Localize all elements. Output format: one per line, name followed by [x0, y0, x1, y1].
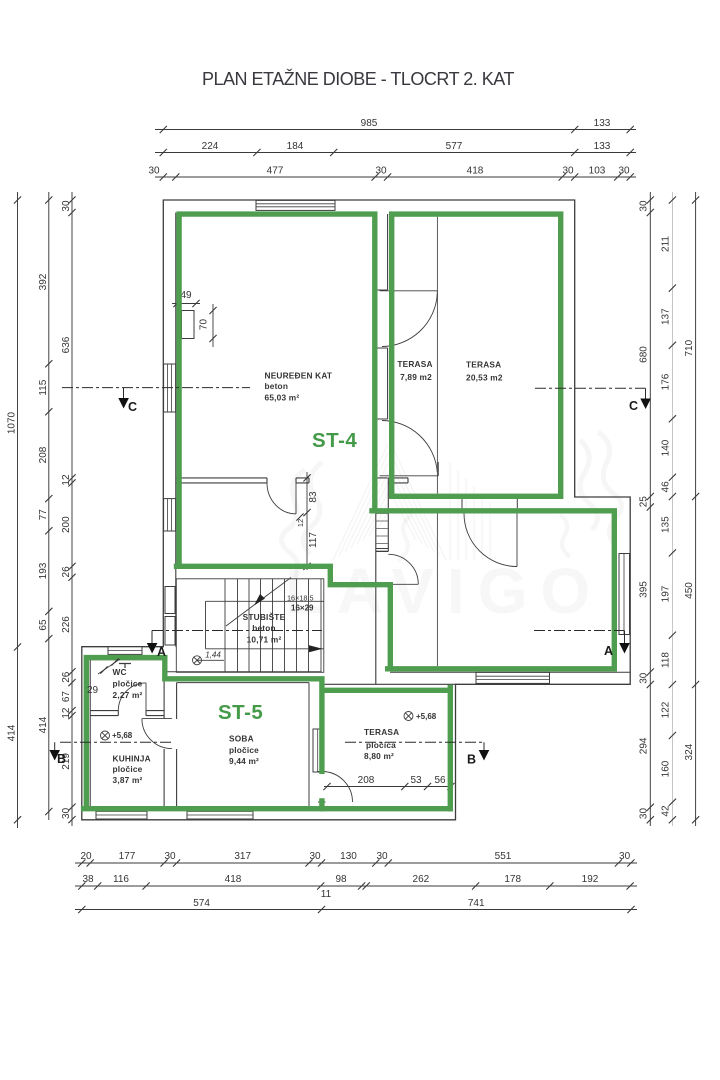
- svg-text:38: 38: [82, 874, 94, 885]
- svg-text:56: 56: [434, 775, 446, 786]
- svg-text:160: 160: [661, 760, 672, 777]
- svg-text:30: 30: [61, 807, 72, 819]
- svg-text:395: 395: [639, 581, 650, 598]
- svg-text:574: 574: [193, 898, 210, 909]
- svg-text:pločica: pločica: [366, 740, 396, 750]
- svg-text:200: 200: [61, 516, 72, 533]
- svg-text:29: 29: [87, 685, 99, 696]
- svg-text:30: 30: [148, 166, 160, 177]
- svg-text:53: 53: [410, 775, 422, 786]
- svg-text:224: 224: [202, 141, 219, 152]
- svg-text:414: 414: [38, 716, 49, 733]
- svg-text:30: 30: [619, 851, 631, 862]
- svg-text:477: 477: [267, 166, 284, 177]
- svg-text:11: 11: [321, 889, 332, 900]
- svg-text:226: 226: [61, 616, 72, 633]
- svg-text:70: 70: [199, 319, 210, 331]
- svg-text:TERASA: TERASA: [397, 359, 432, 369]
- svg-text:30: 30: [376, 851, 388, 862]
- svg-text:176: 176: [661, 373, 672, 390]
- svg-text:KUHINJA: KUHINJA: [113, 754, 151, 764]
- svg-text:30: 30: [375, 166, 387, 177]
- svg-text:ST-4: ST-4: [312, 429, 357, 452]
- svg-text:beton: beton: [265, 381, 289, 391]
- svg-text:30: 30: [562, 166, 574, 177]
- svg-text:418: 418: [467, 166, 484, 177]
- svg-text:414: 414: [7, 724, 18, 741]
- svg-text:B: B: [57, 752, 66, 766]
- svg-text:985: 985: [361, 118, 378, 129]
- svg-text:103: 103: [589, 166, 606, 177]
- svg-text:211: 211: [661, 236, 672, 252]
- svg-text:25: 25: [639, 496, 650, 508]
- svg-text:418: 418: [225, 874, 242, 885]
- svg-text:122: 122: [661, 701, 672, 718]
- svg-text:65: 65: [38, 619, 49, 631]
- svg-text:197: 197: [661, 585, 672, 602]
- svg-text:317: 317: [234, 851, 251, 862]
- svg-text:+5,68: +5,68: [112, 731, 133, 740]
- svg-text:30: 30: [639, 808, 650, 820]
- svg-text:7,89 m2: 7,89 m2: [400, 372, 432, 382]
- svg-text:8,80 m²: 8,80 m²: [364, 751, 394, 761]
- svg-text:710: 710: [684, 339, 695, 356]
- svg-text:551: 551: [495, 851, 512, 862]
- svg-text:42: 42: [661, 805, 672, 817]
- svg-text:178: 178: [504, 874, 521, 885]
- svg-text:46: 46: [661, 481, 672, 493]
- svg-text:118: 118: [661, 652, 672, 668]
- svg-text:65,03 m²: 65,03 m²: [265, 393, 300, 403]
- svg-text:2,27 m²: 2,27 m²: [113, 690, 143, 700]
- svg-text:TERASA: TERASA: [364, 727, 399, 737]
- svg-text:1070: 1070: [7, 411, 18, 434]
- svg-text:177: 177: [119, 851, 136, 862]
- svg-text:30: 30: [639, 672, 650, 684]
- svg-text:STUBIŠTE: STUBIŠTE: [243, 611, 286, 622]
- svg-text:30: 30: [164, 851, 176, 862]
- svg-text:450: 450: [684, 582, 695, 599]
- svg-text:ST-5: ST-5: [218, 701, 263, 724]
- svg-text:SOBA: SOBA: [229, 734, 254, 744]
- svg-text:193: 193: [38, 562, 49, 579]
- svg-text:NEUREĐEN KAT: NEUREĐEN KAT: [265, 371, 333, 381]
- svg-text:30: 30: [309, 851, 321, 862]
- svg-text:77: 77: [38, 509, 49, 521]
- svg-text:12: 12: [61, 474, 72, 486]
- svg-text:20: 20: [80, 851, 92, 862]
- svg-text:137: 137: [661, 308, 672, 325]
- svg-text:26: 26: [61, 671, 72, 683]
- svg-text:+5,68: +5,68: [416, 712, 437, 721]
- svg-text:pločice: pločice: [113, 764, 143, 774]
- svg-text:20,53 m2: 20,53 m2: [466, 373, 503, 383]
- svg-text:16×18,5: 16×18,5: [287, 594, 314, 603]
- svg-text:9,44 m²: 9,44 m²: [229, 756, 259, 766]
- svg-text:pločice: pločice: [229, 745, 259, 755]
- svg-text:30: 30: [618, 166, 630, 177]
- svg-text:30: 30: [639, 200, 650, 212]
- svg-text:636: 636: [61, 336, 72, 353]
- svg-text:133: 133: [594, 118, 611, 129]
- svg-text:C: C: [629, 399, 638, 413]
- svg-text:16×29: 16×29: [291, 604, 314, 613]
- svg-text:TERASA: TERASA: [466, 360, 501, 370]
- svg-text:741: 741: [468, 898, 485, 909]
- svg-text:83: 83: [308, 491, 319, 503]
- svg-text:3,87 m²: 3,87 m²: [113, 775, 143, 785]
- svg-text:116: 116: [113, 874, 129, 885]
- svg-text:67: 67: [61, 691, 72, 703]
- svg-text:49: 49: [180, 290, 192, 301]
- svg-text:beton: beton: [252, 623, 276, 633]
- svg-text:135: 135: [661, 516, 672, 533]
- svg-text:208: 208: [358, 775, 375, 786]
- svg-text:294: 294: [639, 737, 650, 754]
- svg-text:10,71 m²: 10,71 m²: [247, 635, 282, 645]
- svg-text:12: 12: [296, 519, 305, 527]
- svg-text:A: A: [604, 644, 613, 658]
- svg-text:392: 392: [38, 273, 49, 290]
- svg-text:A: A: [157, 645, 166, 659]
- svg-text:pločice: pločice: [113, 679, 143, 689]
- svg-text:1,44: 1,44: [205, 651, 221, 660]
- svg-text:133: 133: [594, 141, 611, 152]
- svg-text:117: 117: [308, 532, 319, 548]
- svg-text:324: 324: [684, 743, 695, 760]
- svg-text:140: 140: [661, 439, 672, 456]
- svg-text:98: 98: [335, 874, 347, 885]
- svg-text:B: B: [467, 753, 476, 767]
- svg-text:PLAN ETAŽNE DIOBE - TLOCRT 2.: PLAN ETAŽNE DIOBE - TLOCRT 2. KAT: [202, 69, 514, 89]
- svg-text:C: C: [128, 400, 137, 414]
- svg-text:208: 208: [38, 446, 49, 463]
- svg-text:184: 184: [287, 141, 304, 152]
- svg-text:115: 115: [38, 379, 49, 395]
- svg-text:30: 30: [61, 200, 72, 212]
- svg-text:192: 192: [582, 874, 599, 885]
- svg-text:WC: WC: [113, 667, 127, 677]
- svg-text:130: 130: [340, 851, 357, 862]
- svg-text:577: 577: [446, 141, 463, 152]
- svg-text:26: 26: [61, 566, 72, 578]
- svg-text:262: 262: [413, 874, 430, 885]
- svg-text:12: 12: [61, 707, 72, 719]
- svg-text:680: 680: [639, 346, 650, 363]
